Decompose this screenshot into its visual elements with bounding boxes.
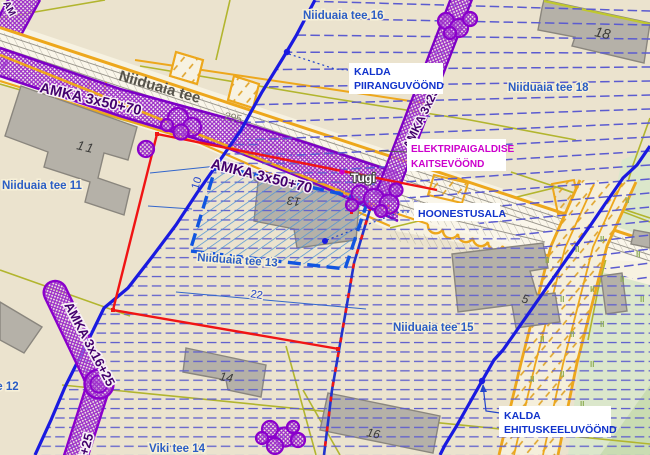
svg-text:HOONESTUSALA: HOONESTUSALA <box>418 208 507 220</box>
svg-text:II: II <box>636 250 640 259</box>
svg-text:Viki tee 14: Viki tee 14 <box>149 443 206 455</box>
svg-text:ELEKTRIPAIGALDISE: ELEKTRIPAIGALDISE <box>411 144 514 155</box>
svg-text:II: II <box>575 245 579 254</box>
svg-text:14: 14 <box>218 369 234 385</box>
svg-text:II: II <box>560 370 564 379</box>
svg-text:II: II <box>625 196 629 205</box>
svg-text:Niiduaia tee 18: Niiduaia tee 18 <box>508 82 589 94</box>
svg-text:II: II <box>600 235 604 244</box>
svg-text:II: II <box>590 360 594 369</box>
svg-text:tee 12: tee 12 <box>0 381 19 393</box>
svg-text:II: II <box>590 285 594 294</box>
svg-text:Niiduaia tee 16: Niiduaia tee 16 <box>303 10 384 22</box>
svg-text:KAITSEVÖÖND: KAITSEVÖÖND <box>411 157 484 170</box>
svg-text:II: II <box>560 295 564 304</box>
svg-text:22: 22 <box>249 288 263 302</box>
svg-text:II: II <box>570 330 574 339</box>
svg-text:II: II <box>530 375 534 384</box>
svg-text:EHITUSKEELUVÖÖND: EHITUSKEELUVÖÖND <box>504 423 617 436</box>
svg-text:KALDA: KALDA <box>354 66 391 78</box>
svg-text:II: II <box>540 335 544 344</box>
svg-text:II: II <box>620 275 624 284</box>
svg-text:Niiduaia tee 15: Niiduaia tee 15 <box>393 322 474 334</box>
svg-text:II: II <box>600 320 604 329</box>
svg-text:II: II <box>640 295 644 304</box>
svg-text:II: II <box>545 256 549 265</box>
svg-text:Tugi: Tugi <box>351 171 375 185</box>
svg-text:KALDA: KALDA <box>504 410 541 422</box>
svg-text:Niiduaia tee 11: Niiduaia tee 11 <box>2 180 83 192</box>
svg-text:PIIRANGUVÖÖND: PIIRANGUVÖÖND <box>354 79 444 92</box>
svg-text:13: 13 <box>286 193 301 209</box>
